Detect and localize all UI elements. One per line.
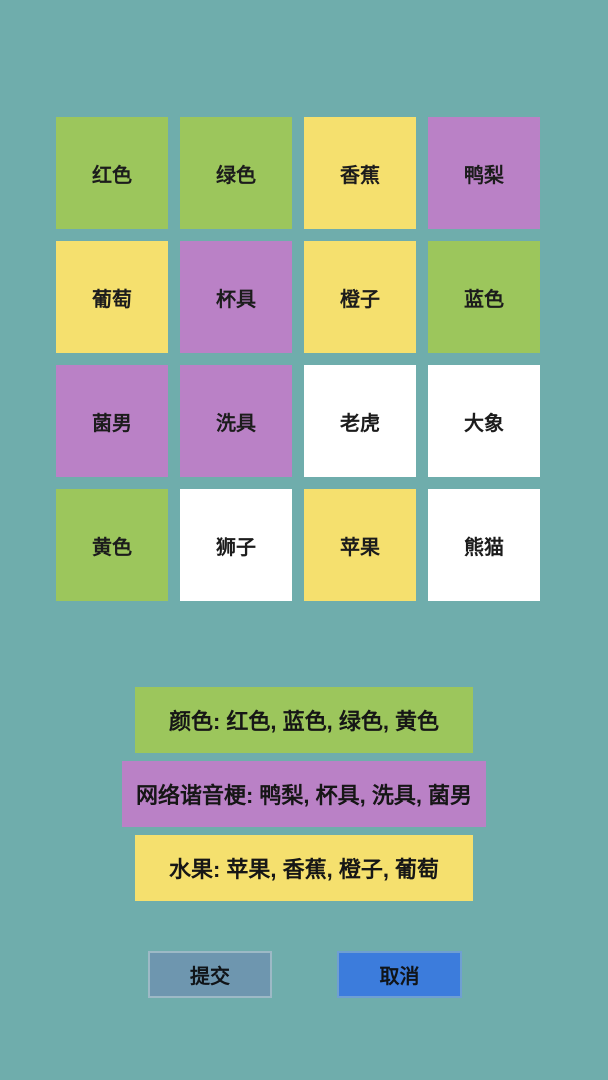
word-tile[interactable]: 大象 <box>428 365 540 477</box>
word-tile[interactable]: 菌男 <box>56 365 168 477</box>
word-tile[interactable]: 狮子 <box>180 489 292 601</box>
word-grid: 红色绿色香蕉鸭梨葡萄杯具橙子蓝色菌男洗具老虎大象黄色狮子苹果熊猫 <box>56 117 540 601</box>
word-tile[interactable]: 洗具 <box>180 365 292 477</box>
word-tile[interactable]: 红色 <box>56 117 168 229</box>
word-tile[interactable]: 黄色 <box>56 489 168 601</box>
game-screen: 红色绿色香蕉鸭梨葡萄杯具橙子蓝色菌男洗具老虎大象黄色狮子苹果熊猫 颜色: 红色,… <box>0 0 608 1080</box>
word-tile[interactable]: 杯具 <box>180 241 292 353</box>
cancel-button[interactable]: 取消 <box>337 951 462 998</box>
word-tile[interactable]: 苹果 <box>304 489 416 601</box>
solved-groups: 颜色: 红色, 蓝色, 绿色, 黄色网络谐音梗: 鸭梨, 杯具, 洗具, 菌男水… <box>0 687 608 901</box>
word-tile[interactable]: 鸭梨 <box>428 117 540 229</box>
solved-group-banner: 水果: 苹果, 香蕉, 橙子, 葡萄 <box>135 835 473 901</box>
word-tile[interactable]: 熊猫 <box>428 489 540 601</box>
word-tile[interactable]: 橙子 <box>304 241 416 353</box>
solved-group-banner: 网络谐音梗: 鸭梨, 杯具, 洗具, 菌男 <box>122 761 486 827</box>
word-tile[interactable]: 香蕉 <box>304 117 416 229</box>
submit-button[interactable]: 提交 <box>148 951 272 998</box>
solved-group-banner: 颜色: 红色, 蓝色, 绿色, 黄色 <box>135 687 473 753</box>
action-bar: 提交 取消 <box>0 951 608 998</box>
word-tile[interactable]: 葡萄 <box>56 241 168 353</box>
word-tile[interactable]: 蓝色 <box>428 241 540 353</box>
word-tile[interactable]: 绿色 <box>180 117 292 229</box>
word-tile[interactable]: 老虎 <box>304 365 416 477</box>
